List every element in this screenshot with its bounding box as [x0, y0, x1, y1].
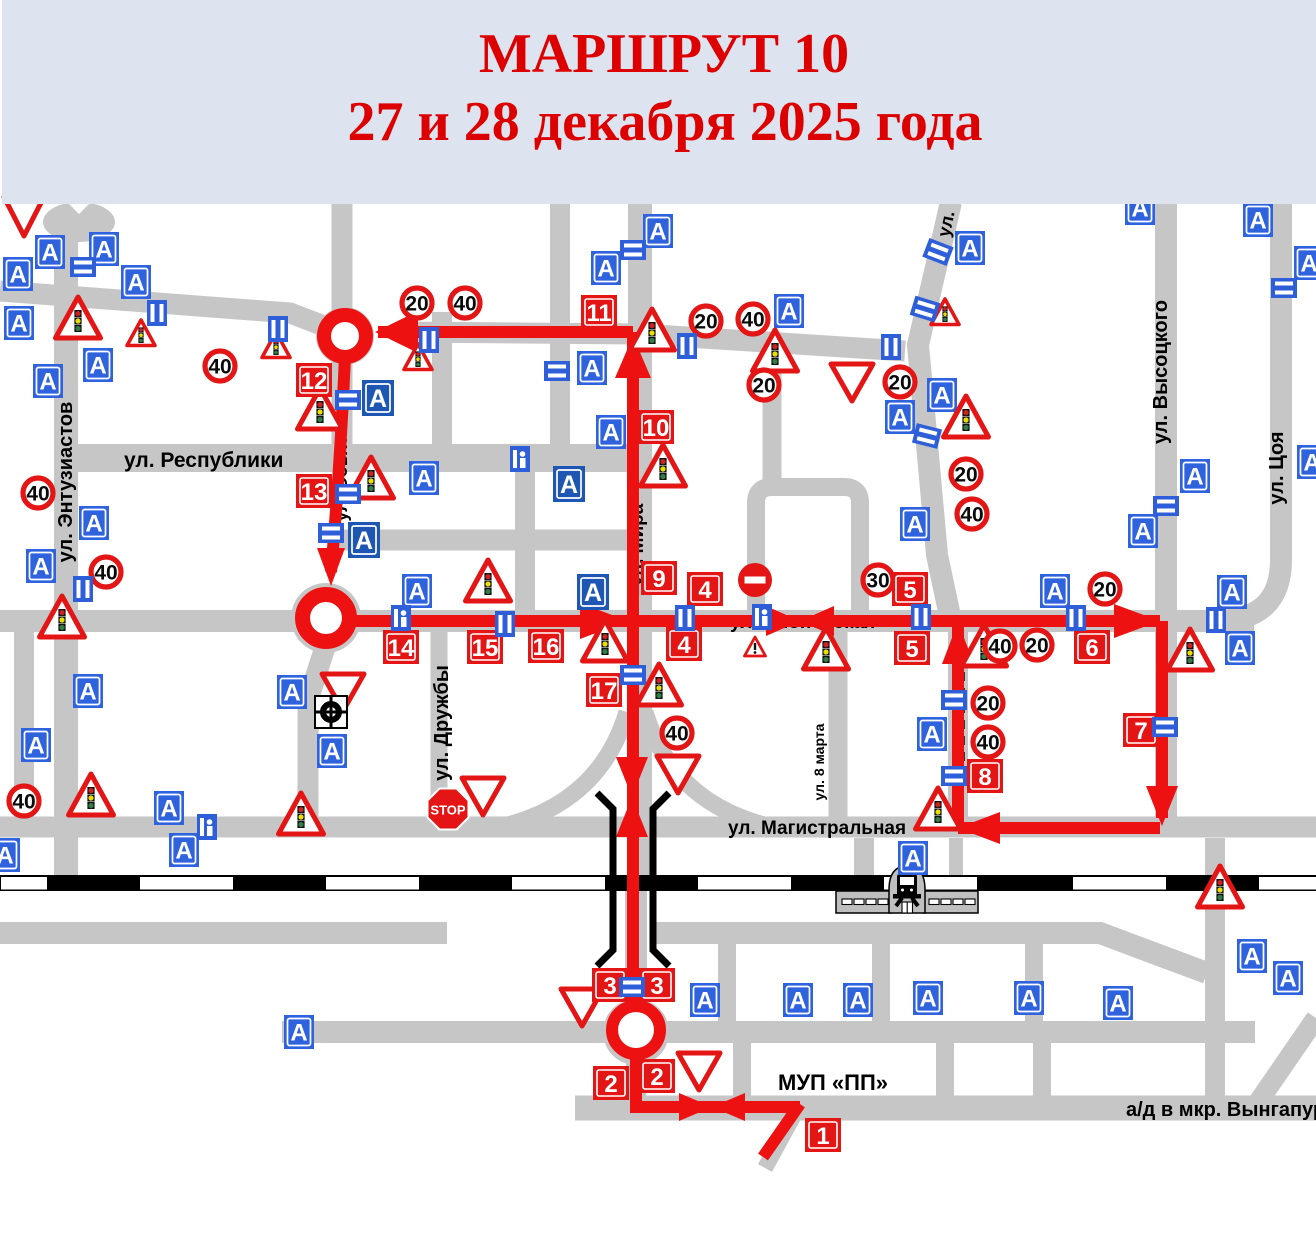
svg-text:5: 5	[903, 577, 916, 604]
svg-text:ул. Магистральная: ул. Магистральная	[728, 818, 906, 839]
svg-text:40: 40	[12, 791, 35, 814]
svg-text:3: 3	[603, 973, 616, 1000]
svg-text:ул. Цоя: ул. Цоя	[1266, 431, 1288, 504]
svg-text:ул. Энтузиастов: ул. Энтузиастов	[55, 402, 77, 563]
svg-text:40: 40	[976, 732, 999, 755]
svg-text:14: 14	[388, 635, 415, 662]
svg-text:3: 3	[650, 973, 663, 1000]
svg-text:4: 4	[698, 577, 712, 604]
svg-text:20: 20	[976, 693, 999, 716]
svg-text:40: 40	[960, 504, 983, 527]
svg-text:40: 40	[94, 562, 117, 585]
svg-text:8: 8	[978, 764, 991, 791]
svg-text:4: 4	[677, 632, 691, 659]
svg-text:40: 40	[26, 483, 49, 506]
svg-text:6: 6	[1085, 635, 1098, 662]
svg-text:9: 9	[652, 566, 665, 593]
svg-text:27 и 28 декабря 2025 года: 27 и 28 декабря 2025 года	[347, 91, 982, 153]
svg-text:МАРШРУТ 10: МАРШРУТ 10	[479, 23, 849, 85]
svg-text:20: 20	[954, 464, 977, 487]
svg-text:11: 11	[586, 300, 611, 327]
svg-text:7: 7	[1134, 718, 1147, 745]
svg-text:ул. Республики: ул. Республики	[124, 449, 283, 472]
svg-text:а/д в мкр. Вынгапур: а/д в мкр. Вынгапур	[1126, 1099, 1316, 1121]
svg-text:20: 20	[1093, 579, 1116, 602]
svg-text:20: 20	[888, 372, 911, 395]
svg-text:STOP: STOP	[430, 803, 465, 818]
svg-text:1: 1	[816, 1123, 829, 1150]
svg-text:40: 40	[453, 293, 476, 316]
svg-text:20: 20	[1025, 635, 1048, 658]
svg-text:40: 40	[988, 636, 1011, 659]
svg-text:12: 12	[301, 368, 328, 395]
svg-text:40: 40	[208, 356, 231, 379]
svg-text:40: 40	[741, 309, 764, 332]
svg-text:МУП «ПП»: МУП «ПП»	[778, 1070, 888, 1095]
svg-text:16: 16	[533, 634, 560, 661]
svg-text:15: 15	[472, 635, 499, 662]
svg-text:13: 13	[301, 479, 328, 506]
svg-text:ул. Высоцкого: ул. Высоцкого	[1150, 300, 1172, 444]
svg-text:2: 2	[650, 1064, 663, 1091]
svg-text:2: 2	[604, 1071, 617, 1098]
svg-text:ул. 8 марта: ул. 8 марта	[811, 723, 827, 800]
svg-text:30: 30	[866, 570, 889, 593]
svg-text:20: 20	[752, 375, 775, 398]
svg-text:5: 5	[905, 636, 918, 663]
svg-text:ул. Дружбы: ул. Дружбы	[431, 665, 453, 781]
svg-text:17: 17	[591, 678, 618, 705]
svg-text:20: 20	[694, 311, 717, 334]
svg-text:40: 40	[665, 723, 688, 746]
svg-text:20: 20	[405, 293, 428, 316]
svg-text:10: 10	[643, 415, 670, 442]
